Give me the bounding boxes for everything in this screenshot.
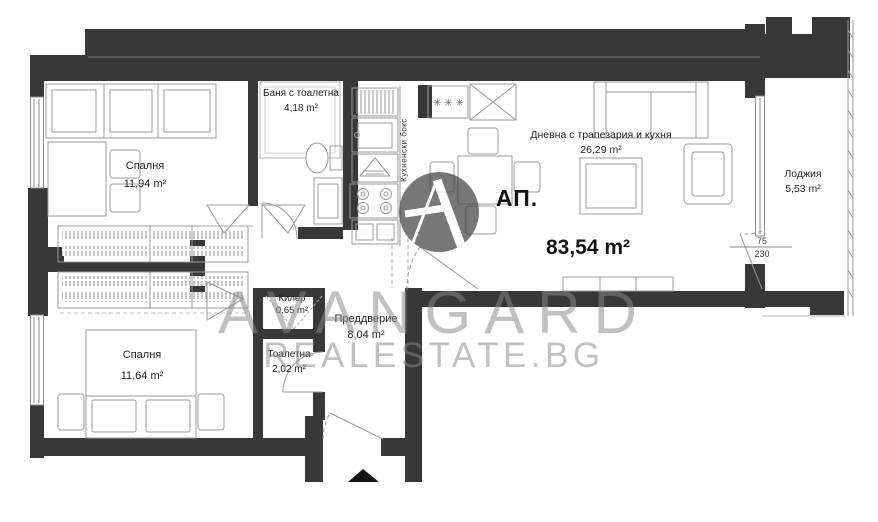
desk-icon [48,142,106,216]
svg-text:✳ ✳ ✳: ✳ ✳ ✳ [433,98,464,109]
room-name: Кухненски бокс [400,118,409,182]
room-area: 11,64 m² [121,370,164,384]
room-name: Спалня [124,160,167,174]
furniture-bedroom-1 [46,84,216,216]
door-dimension-width: 75 [757,236,767,246]
label-bedroom-2: Спалня 11,64 m² [121,349,164,384]
total-area-label: 83,54 m² [546,236,630,260]
room-area: 5,53 m² [784,183,821,196]
room-name: Килер [276,293,308,305]
apartment-label: АП. [496,185,538,212]
armchair-icon [684,144,732,204]
room-area: 26,29 m² [530,144,671,157]
room-area: 0,65 m² [276,305,308,317]
room-name: Баня с тоалетна [263,88,339,101]
room-name: Тоалетна [267,349,310,362]
label-closet: Килер 0,65 m² [276,293,308,317]
tv-cabinet-icon [563,277,673,291]
counter-top: ✳ ✳ ✳ [428,84,516,120]
room-name: Дневна с трапезария и кухня [530,129,671,142]
room-name: Спалня [121,349,164,363]
room-name: Лоджия [784,168,821,181]
floor-plan-canvas: ✳ ✳ ✳ [0,0,878,522]
entry-arrow-icon [348,469,379,482]
room-area: 4,18 m² [263,103,339,116]
label-bathroom: Баня с тоалетна 4,18 m² [263,88,339,115]
label-kitchen-box: Кухненски бокс [400,118,409,182]
label-toilet: Тоалетна 2,02 m² [267,349,310,376]
room-area: 11,94 m² [124,178,167,192]
label-loggia: Лоджия 5,53 m² [784,168,821,196]
label-entry-hall: Преддверие 8,04 m² [335,313,398,343]
nightstand-icon [58,394,84,430]
floor-plan-linework: ✳ ✳ ✳ [0,0,878,522]
room-area: 2,02 m² [267,364,310,377]
dining-table-icon [430,128,540,234]
bed-icon [58,330,224,438]
door-dimension-height: 230 [754,249,769,259]
door-swings [200,203,762,439]
dish-rack-icon [352,88,398,116]
coffee-table-icon [580,158,642,214]
room-name: Преддверие [335,313,398,327]
nightstand-icon [198,394,224,430]
label-living-room: Дневна с трапезария и кухня 26,29 m² [530,129,671,157]
room-area: 8,04 m² [335,329,398,343]
label-bedroom-1: Спалня 11,94 m² [124,160,167,192]
